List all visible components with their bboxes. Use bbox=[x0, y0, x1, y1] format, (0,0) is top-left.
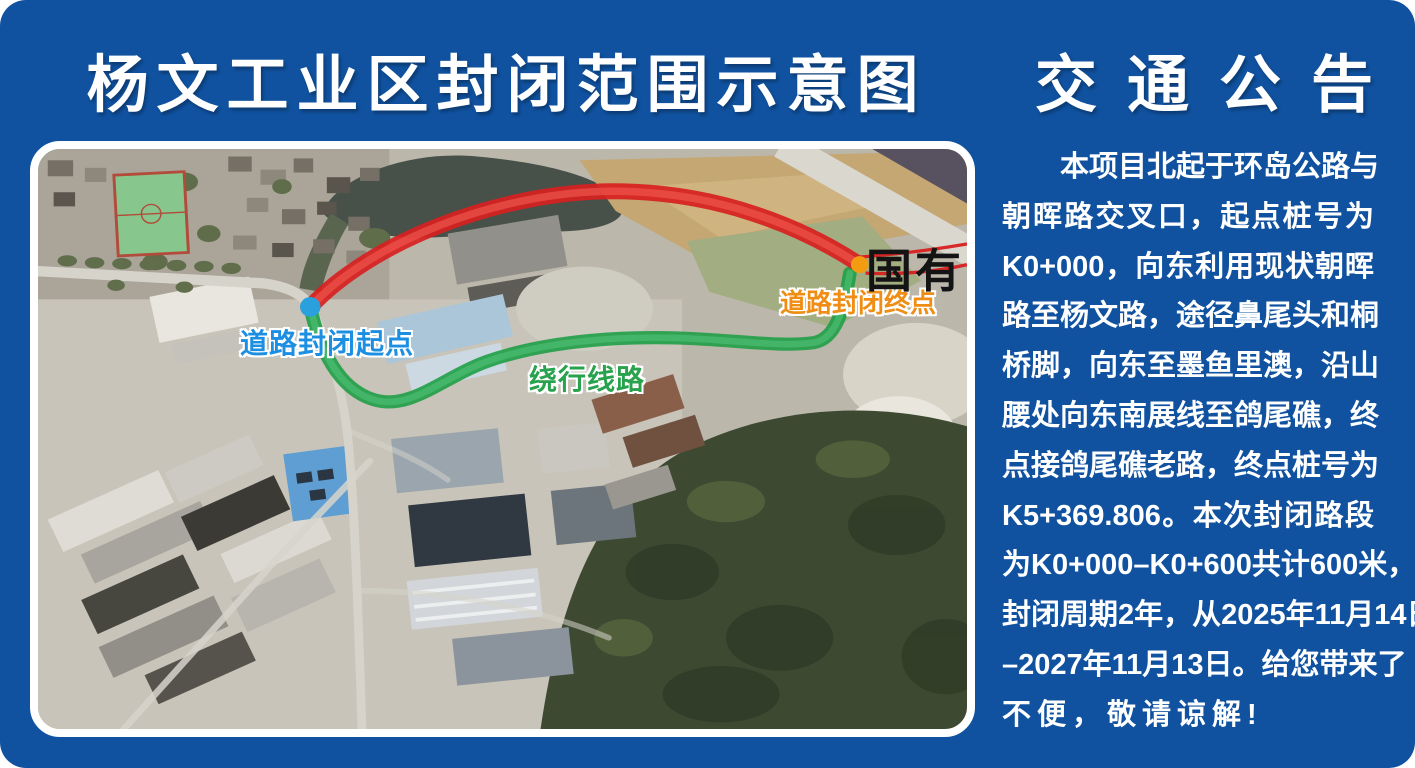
notice-line: 封闭周期2年，从2025年11月14日 bbox=[1002, 591, 1374, 641]
notice-line: K5+369.806。本次封闭路段 bbox=[1002, 492, 1374, 542]
notice-line: 朝晖路交叉口，起点桩号为 bbox=[1002, 193, 1374, 243]
notice-title: 交通公告 bbox=[1002, 34, 1406, 124]
notice-line: 路至杨文路，途径鼻尾头和桐 bbox=[1002, 292, 1374, 342]
closure-start-marker bbox=[300, 297, 320, 317]
notice-panel: 本项目北起于环岛公路与朝晖路交叉口，起点桩号为K0+000，向东利用现状朝晖路至… bbox=[1002, 143, 1374, 743]
notice-line: –2027年11月13日。给您带来了 bbox=[1002, 641, 1374, 691]
notice-line: 不便，敬请谅解! bbox=[1002, 691, 1374, 741]
detour-route-label: 绕行线路 bbox=[529, 358, 645, 398]
map-title: 杨文工业区封闭范围示意图 bbox=[30, 34, 975, 124]
notice-line: 为K0+000–K0+600共计600米， bbox=[1002, 541, 1374, 591]
traffic-notice-poster: 杨文工业区封闭范围示意图 交通公告 bbox=[0, 0, 1415, 768]
map-frame: 道路封闭起点 绕行线路 道路封闭终点 国有 bbox=[30, 141, 975, 737]
sports-court bbox=[114, 172, 189, 256]
notice-line: 点接鸽尾礁老路，终点桩号为 bbox=[1002, 442, 1374, 492]
terrain-text-label: 国有 bbox=[866, 235, 964, 301]
notice-line: 本项目北起于环岛公路与 bbox=[1002, 143, 1374, 193]
closure-start-label: 道路封闭起点 bbox=[240, 322, 414, 362]
notice-line: K0+000，向东利用现状朝晖 bbox=[1002, 243, 1374, 293]
notice-line: 腰处向东南展线至鸽尾礁，终 bbox=[1002, 392, 1374, 442]
notice-line: 桥脚，向东至墨鱼里澳，沿山 bbox=[1002, 342, 1374, 392]
satellite-map: 道路封闭起点 绕行线路 道路封闭终点 国有 bbox=[38, 149, 967, 729]
satellite-base bbox=[38, 149, 967, 729]
